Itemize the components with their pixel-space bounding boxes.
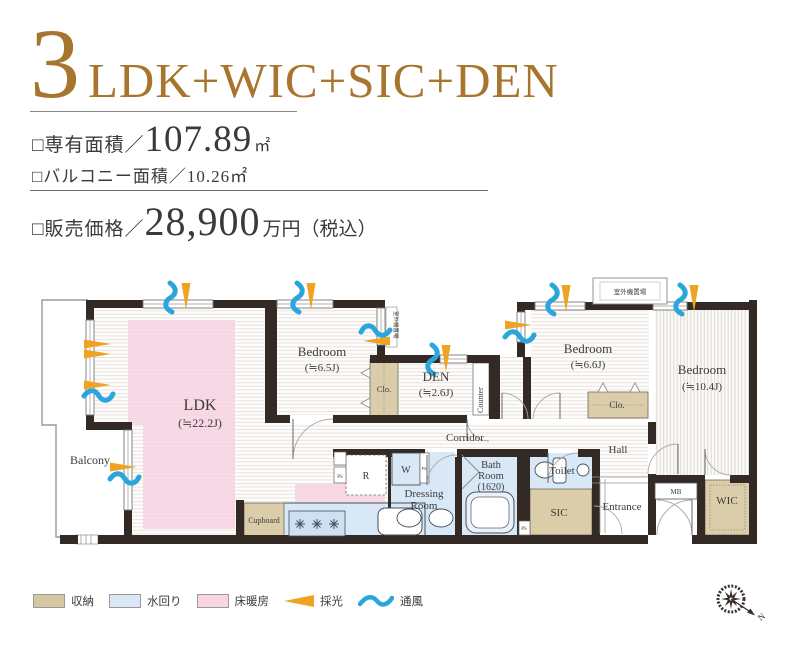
legend-item-water: 水回り: [109, 593, 182, 609]
entrance-label: Entrance: [602, 501, 641, 513]
bedroom2-label: Bedroom: [564, 341, 612, 356]
cupboard-label: Cupboard: [248, 516, 280, 525]
ps-label-3: PS: [521, 527, 527, 532]
price-label: □販売価格／: [32, 214, 144, 241]
legend: 収納 水回り 床暖房 採光 通風: [33, 593, 438, 609]
mb-label: MB: [671, 488, 682, 496]
legend-label: 通風: [400, 593, 423, 609]
ldk-size: (≒22.2J): [178, 416, 222, 430]
dressing-label-1: Dressing: [404, 488, 444, 500]
area-label: □専有面積／: [32, 130, 144, 157]
bedroom1-label: Bedroom: [298, 344, 346, 359]
bedroom2-size: (≒6.6J): [571, 359, 606, 371]
compass-north-label: N: [756, 611, 768, 623]
dressing-label-2: Room: [411, 500, 438, 512]
bath-label-1: Bath: [481, 460, 502, 471]
svg-text:室外機置場: 室外機置場: [614, 287, 647, 296]
legend-label: 床暖房: [235, 593, 270, 609]
divider-line: [30, 190, 488, 191]
price-value: 28,900: [144, 198, 260, 245]
closet2-label: Clo.: [609, 400, 624, 410]
compass-needle: [747, 609, 755, 616]
bath-label-3: (1620): [478, 482, 505, 493]
hall-label: Hall: [609, 444, 628, 456]
legend-label: 採光: [320, 593, 343, 609]
storage-swatch: [33, 594, 65, 608]
floor-plan: 室外機置場 室外機置場: [0, 272, 788, 557]
area-unit: ㎡: [254, 132, 270, 156]
airflow-wave-icon: [358, 594, 394, 608]
water-swatch: [109, 594, 141, 608]
svg-text:室外機置場: 室外機置場: [392, 311, 400, 339]
balcony-label: Balcony: [70, 453, 110, 467]
legend-item-storage: 収納: [33, 593, 94, 609]
floor-heating-swatch: [197, 594, 229, 608]
counter-label: Counter: [476, 387, 485, 413]
bath-label-2: Room: [478, 471, 504, 482]
legend-label: 水回り: [147, 593, 182, 609]
sic-label: SIC: [550, 507, 567, 519]
title-room-type: LDK+WIC+SIC+DEN: [80, 56, 559, 105]
spec-balcony-area: □バルコニー面積／10.26㎡: [32, 162, 248, 187]
toilet-label: Toilet: [549, 465, 575, 477]
legend-item-daylight: 採光: [284, 593, 343, 609]
page-title: 3LDK+WIC+SIC+DEN: [30, 14, 559, 114]
daylight-arrow-icon: [284, 595, 314, 607]
title-underline: [30, 111, 297, 112]
airflow-arrow: [505, 332, 534, 342]
ldk-label: LDK: [184, 397, 217, 414]
den-size: (≒2.6J): [419, 387, 454, 399]
washer-label: W: [401, 465, 411, 476]
spec-area: □専有面積／ 107.89 ㎡: [32, 118, 270, 161]
wic-label: WIC: [716, 495, 737, 507]
compass-rose: N: [700, 572, 780, 632]
fridge-label: R: [363, 471, 370, 482]
legend-item-airflow: 通風: [358, 593, 423, 609]
corridor-label: Corridor: [446, 432, 484, 444]
area-value: 107.89: [144, 118, 252, 161]
closet1-label: Clo.: [377, 384, 391, 394]
legend-item-floor-heating: 床暖房: [197, 593, 270, 609]
den-label: DEN: [423, 369, 450, 384]
page: 3LDK+WIC+SIC+DEN □専有面積／ 107.89 ㎡ □バルコニー面…: [0, 0, 788, 655]
toilet-handwash: [577, 464, 589, 476]
bedroom3-label: Bedroom: [678, 362, 726, 377]
wic-area: [705, 480, 750, 535]
bedroom3-size: (≒10.4J): [682, 381, 722, 393]
ps-label-1: PS: [337, 475, 343, 480]
outdoor-unit-space-top: 室外機置場: [593, 278, 667, 304]
evacuation-hatch: [76, 535, 98, 544]
ps-label-2: PS: [421, 466, 427, 471]
title-room-count: 3: [30, 14, 80, 114]
price-suffix: 万円（税込）: [262, 214, 376, 241]
legend-label: 収納: [71, 593, 94, 609]
spec-price: □販売価格／ 28,900 万円（税込）: [32, 198, 377, 245]
bedroom1-size: (≒6.5J): [305, 362, 340, 374]
